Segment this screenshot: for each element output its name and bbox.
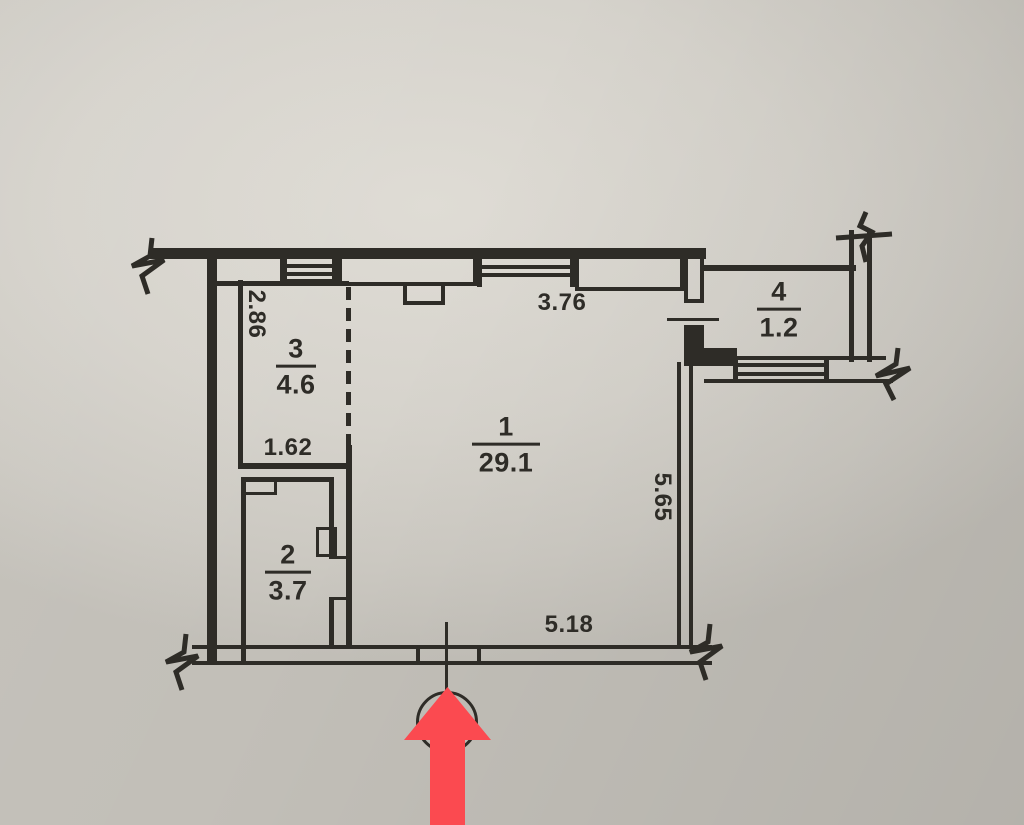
room2-corner-notch <box>241 492 277 495</box>
room2-duct <box>316 527 337 557</box>
room4-door-axis-tick <box>667 318 719 321</box>
dimension-room3-height: 2.86 <box>242 290 270 339</box>
room2-wall-right-outer <box>346 445 352 649</box>
room1-wall-right <box>689 362 693 649</box>
window-1-line <box>287 272 332 276</box>
floor-plan: 1 29.1 2 3.7 3 4.6 4 1.2 2.86 1.62 3.76 … <box>0 0 1024 825</box>
entrance-door-jamb <box>416 645 420 665</box>
room2-wall-top <box>241 477 334 482</box>
wall-notch <box>403 286 445 305</box>
room-1-fraction-line <box>472 443 540 446</box>
room-4-label: 4 1.2 <box>757 278 801 343</box>
room4-wall-top <box>704 265 856 271</box>
floor-plan-photo: 1 29.1 2 3.7 3 4.6 4 1.2 2.86 1.62 3.76 … <box>0 0 1024 825</box>
wall-break-mark <box>872 348 916 402</box>
room-4-number: 4 <box>771 278 787 306</box>
room2-door-jamb <box>329 597 352 600</box>
room-3-number: 3 <box>288 335 304 363</box>
room-3-fraction-line <box>276 365 316 368</box>
window-1-line <box>287 264 332 268</box>
room-1-label: 1 29.1 <box>472 413 540 478</box>
room4-door-wall-cap <box>684 299 704 303</box>
room-4-area: 1.2 <box>759 314 798 342</box>
room1-wall-right <box>677 362 681 649</box>
entrance-door-jamb <box>477 645 481 665</box>
room4-window-jamb <box>824 356 829 383</box>
wall-left <box>207 256 217 665</box>
room4-wall-bottom <box>733 356 886 360</box>
room4-door-wall <box>684 325 704 348</box>
room-3-label: 3 4.6 <box>276 335 316 400</box>
room-1-number: 1 <box>498 413 514 441</box>
room-4-fraction-line <box>757 308 801 311</box>
window-unit-1 <box>338 250 477 286</box>
wall-break-mark <box>162 632 202 692</box>
room3-wall-top <box>217 281 349 286</box>
wall-break-mark <box>686 622 726 682</box>
room2-wall-right <box>329 599 334 649</box>
room-2-number: 2 <box>280 541 296 569</box>
room4-window-line <box>738 363 824 367</box>
dimension-room1-bottom-width: 5.18 <box>545 611 594 639</box>
window-unit-2 <box>575 250 684 291</box>
entrance-arrow-icon <box>404 687 491 825</box>
room-2-fraction-line <box>265 571 311 574</box>
room4-door-wall <box>684 259 688 303</box>
wall-break-mark <box>128 236 168 296</box>
wall-bottom <box>192 661 712 665</box>
room4-window-line <box>738 372 824 376</box>
window-2-line <box>482 265 570 269</box>
dimension-room1-right-height: 5.65 <box>648 473 676 522</box>
window-2-jamb-left <box>477 256 482 287</box>
wall-bottom <box>192 645 712 649</box>
dimension-room3-width: 1.62 <box>264 434 313 462</box>
room2-wall-left <box>241 477 246 665</box>
wall-break-mark <box>836 212 892 264</box>
room3-partition-dashed <box>346 287 351 445</box>
window-1-jamb-left <box>280 256 287 284</box>
room-1-area: 29.1 <box>479 449 534 477</box>
window-2-line <box>482 273 570 277</box>
entrance-axis-tick <box>445 622 448 692</box>
room-2-area: 3.7 <box>268 577 307 605</box>
dimension-room1-top-width: 3.76 <box>538 289 587 317</box>
room-3-area: 4.6 <box>276 371 315 399</box>
room3-wall-bottom <box>238 463 352 469</box>
room-2-label: 2 3.7 <box>265 541 311 606</box>
room4-window-jamb <box>733 356 738 383</box>
